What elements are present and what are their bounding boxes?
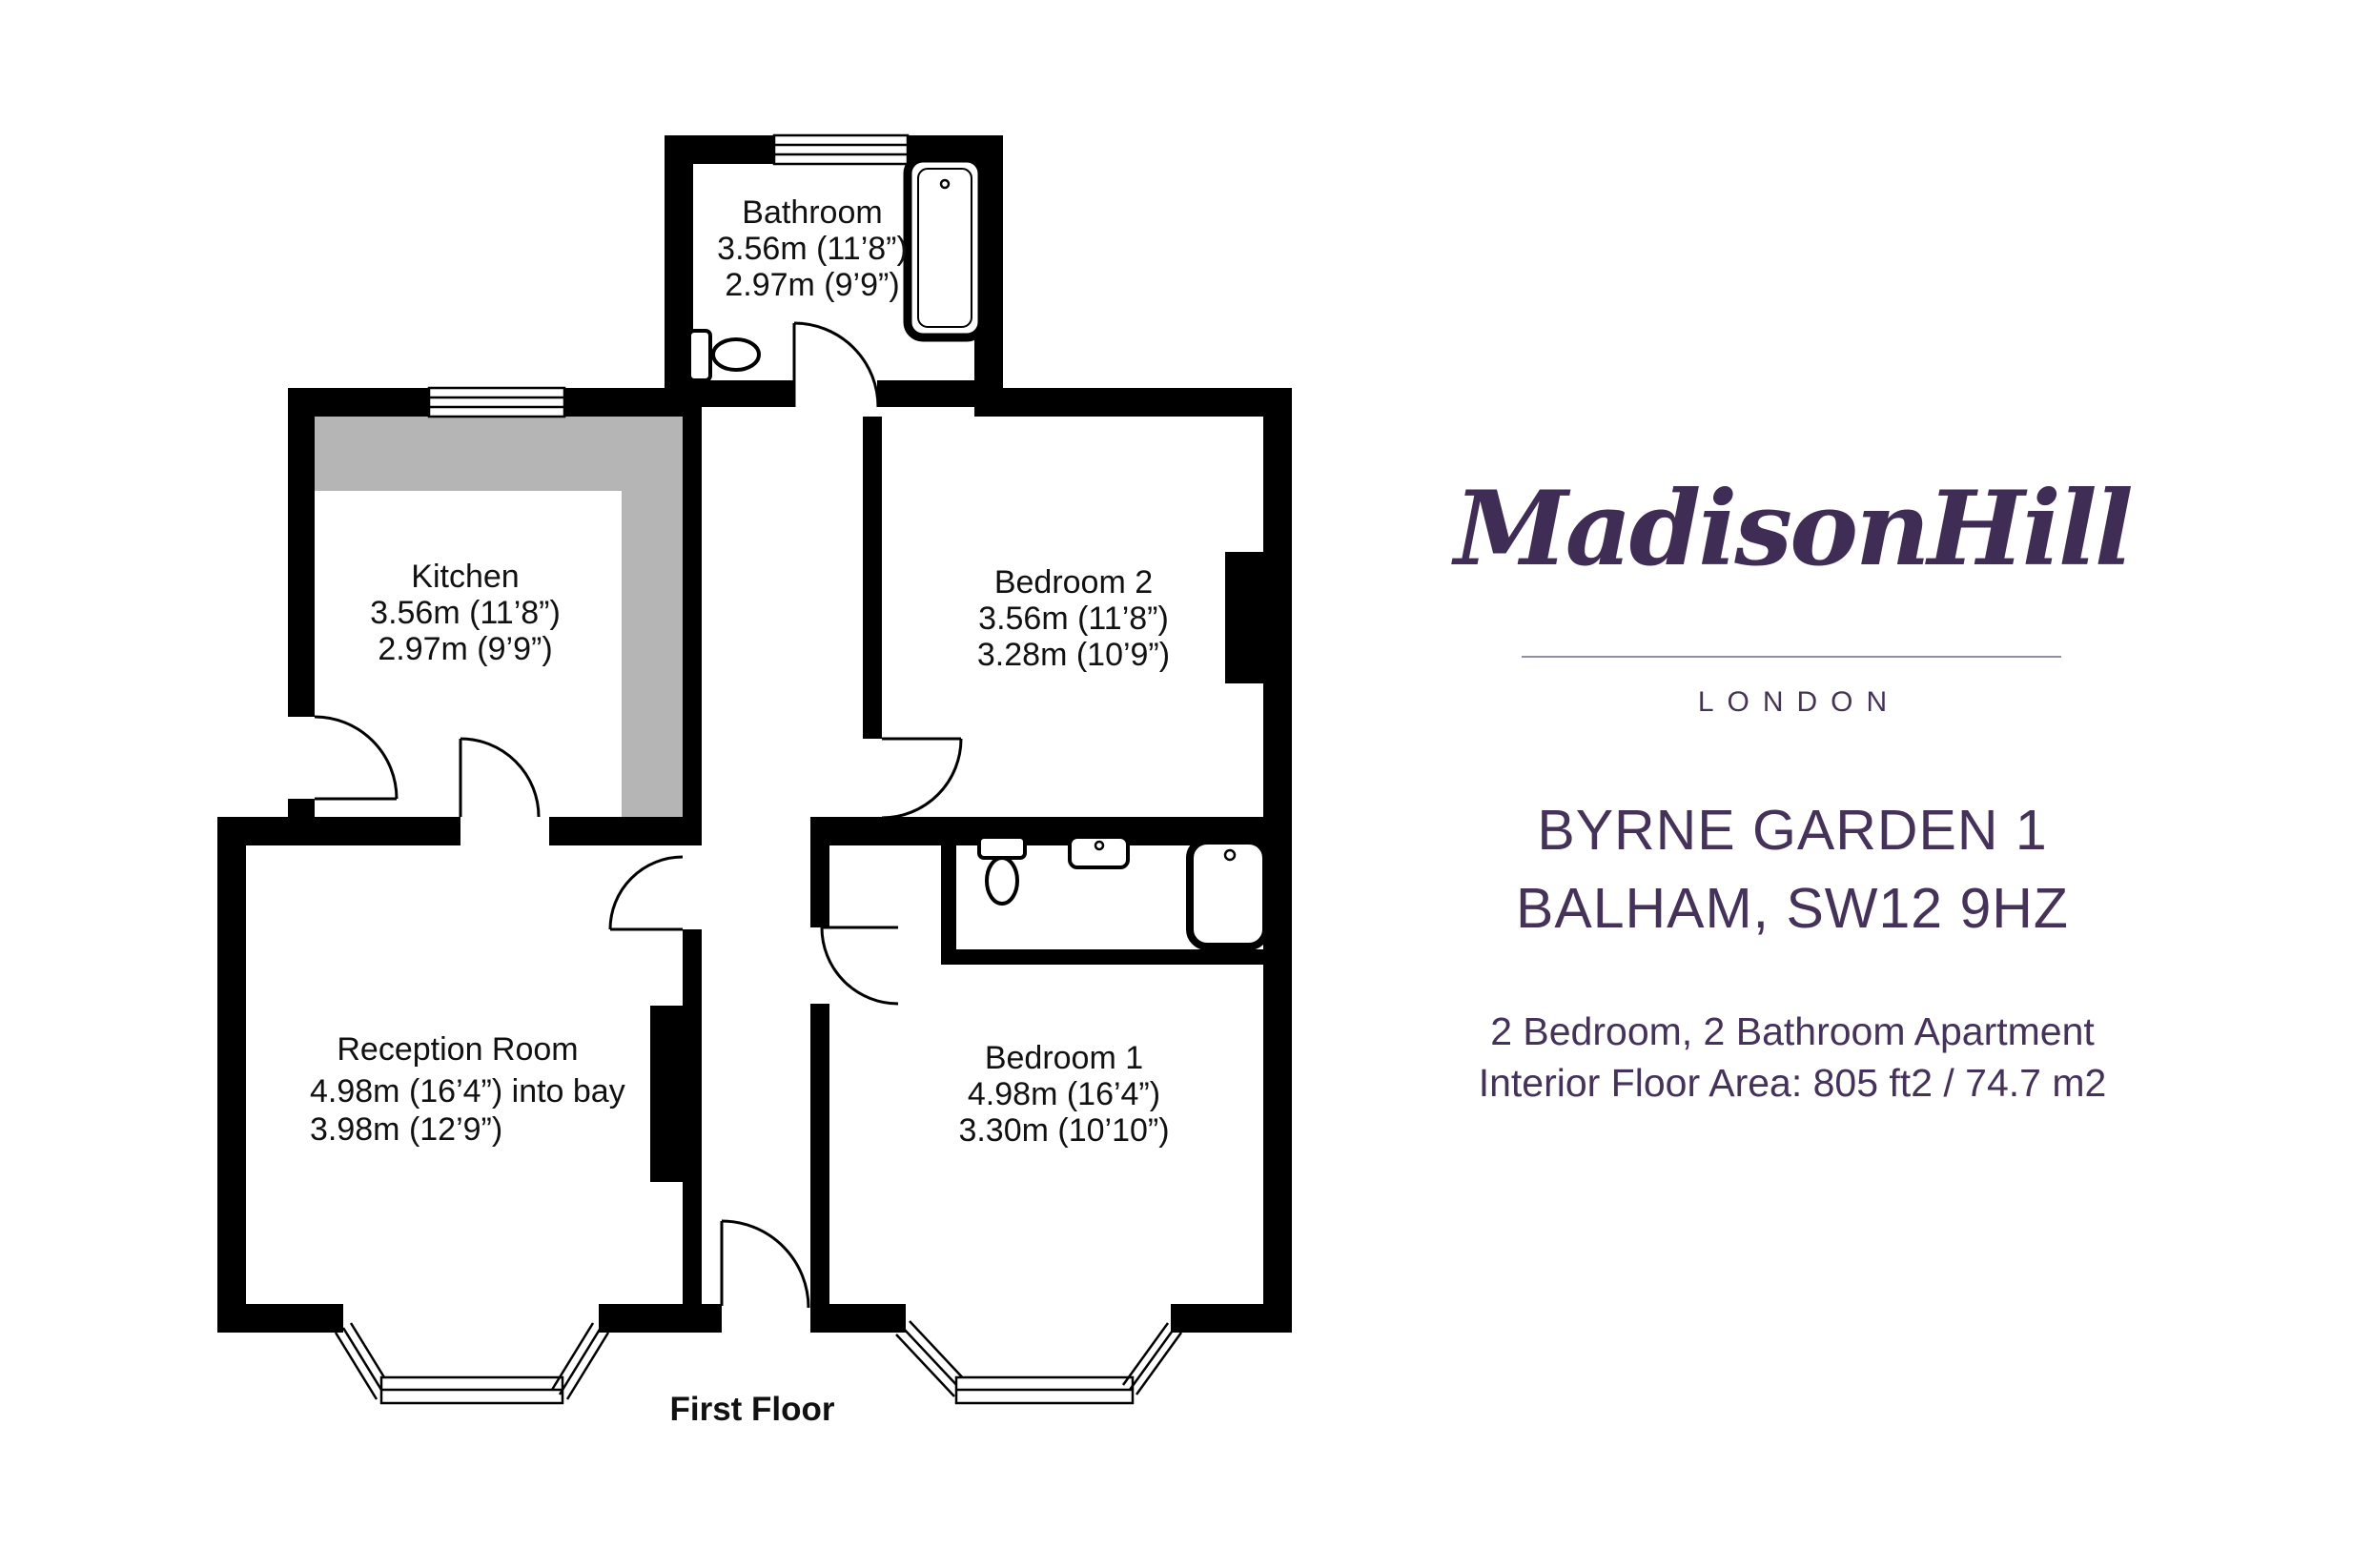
windows [336, 135, 1181, 1403]
wall [683, 929, 702, 1010]
bedroom2-door [882, 739, 961, 818]
wall [1171, 1304, 1292, 1333]
bedroom1-door [822, 927, 898, 1004]
reception-door [610, 857, 683, 929]
wall [810, 1004, 829, 1333]
reception-dim1: 4.98m (16’4”) into bay [310, 1073, 625, 1110]
brand-divider [1522, 656, 2061, 658]
kitchen-dim1: 3.56m (11’8”) [370, 595, 561, 631]
wall [941, 839, 956, 963]
bedroom2-dim1: 3.56m (11’8”) [978, 601, 1169, 637]
bathroom-label: Bathroom [742, 194, 882, 231]
kitchen-dim2: 2.97m (9’9”) [378, 631, 552, 667]
wall [941, 949, 1292, 965]
walls [217, 135, 1292, 1333]
ensuite-sink-icon [1070, 837, 1128, 867]
brand-city-label: LONDON [1382, 686, 2202, 719]
chimney-breast [650, 1006, 702, 1182]
wall [863, 417, 882, 739]
summary-line-2: Interior Floor Area: 805 ft2 / 74.7 m2 [1382, 1057, 2202, 1109]
bedroom1-bay-window [896, 1321, 1181, 1403]
reception-dim2: 3.98m (12’9”) [310, 1111, 502, 1148]
ensuite-toilet-icon [979, 837, 1025, 904]
wall [599, 1304, 722, 1333]
brand-logo: MadisonHill [1382, 469, 2202, 589]
wall [810, 845, 829, 927]
wall [288, 388, 315, 717]
kitchen-counter-right [622, 417, 683, 817]
bedroom2-dim2: 3.28m (10’9”) [977, 637, 1170, 673]
address-line-2: BALHAM, SW12 9HZ [1382, 869, 2202, 947]
summary-line-1: 2 Bedroom, 2 Bathroom Apartment [1382, 1006, 2202, 1057]
bedroom1-dim1: 4.98m (16’4”) [968, 1076, 1160, 1112]
wall [810, 1304, 906, 1333]
kitchen-label: Kitchen [411, 559, 519, 595]
kitchen-reception-door [460, 739, 539, 817]
brand-panel: MadisonHill LONDON BYRNE GARDEN 1 BALHAM… [1382, 0, 2202, 1568]
kitchen-side-door [315, 717, 397, 799]
toilet-icon [689, 331, 759, 380]
wall [974, 388, 1292, 417]
wall [1263, 388, 1292, 845]
reception-label: Reception Room [337, 1031, 578, 1068]
bathroom-door [794, 323, 878, 407]
page-canvas: Bathroom 3.56m (11’8”) 2.97m (9’9”) Kitc… [0, 0, 2353, 1568]
reception-bay-window [336, 1323, 608, 1403]
property-summary: 2 Bedroom, 2 Bathroom Apartment Interior… [1382, 1006, 2202, 1109]
wall [217, 817, 246, 1333]
floor-label: First Floor [669, 1391, 834, 1428]
bathroom-dim1: 3.56m (11’8”) [717, 231, 908, 267]
room-labels: Bathroom 3.56m (11’8”) 2.97m (9’9”) Kitc… [310, 194, 1170, 1428]
bathroom-window [774, 135, 908, 164]
wall [217, 817, 460, 845]
kitchen-window [429, 388, 564, 417]
ensuite-bath-icon [1190, 841, 1266, 947]
bedroom2-label: Bedroom 2 [994, 564, 1153, 601]
wall [564, 388, 702, 417]
bedroom1-dim2: 3.30m (10’10”) [958, 1112, 1169, 1149]
bedroom1-label: Bedroom 1 [985, 1040, 1143, 1076]
address-line-1: BYRNE GARDEN 1 [1382, 791, 2202, 869]
front-door [722, 1221, 808, 1308]
property-address: BYRNE GARDEN 1 BALHAM, SW12 9HZ [1382, 791, 2202, 947]
wall [217, 1304, 343, 1333]
bathroom-dim2: 2.97m (9’9”) [725, 267, 899, 303]
wall [288, 799, 315, 817]
wall [549, 817, 702, 845]
wall [683, 388, 702, 817]
bath-icon [908, 158, 982, 337]
wall [683, 1182, 702, 1304]
chimney-breast [1225, 552, 1265, 683]
